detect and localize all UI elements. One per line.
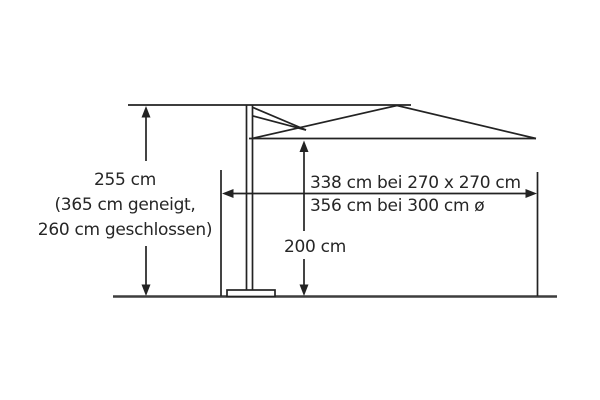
clearance-dimension-arrow (300, 141, 309, 297)
arrow-down-icon (300, 285, 309, 297)
canopy (249, 106, 536, 139)
umbrella-base (227, 290, 275, 297)
arrow-right-icon (526, 189, 538, 198)
arrow-down-icon (142, 285, 151, 297)
height-dimension-label: 255 cm (365 cm geneigt, 260 cm geschloss… (38, 168, 212, 243)
umbrella-dimension-diagram: 255 cm (365 cm geneigt, 260 cm geschloss… (0, 0, 600, 400)
span-square-label: 338 cm bei 270 x 270 cm (310, 173, 521, 193)
height-value: 255 cm (38, 168, 212, 193)
height-tilted-value: (365 cm geneigt, (38, 193, 212, 218)
clearance-label: 200 cm (284, 237, 346, 257)
height-closed-value: 260 cm geschlossen) (38, 218, 212, 243)
span-round-label: 356 cm bei 300 cm ø (310, 196, 484, 216)
arm-brace (253, 108, 306, 131)
canopy-top-outline (252, 106, 536, 139)
umbrella-pole (247, 105, 253, 296)
